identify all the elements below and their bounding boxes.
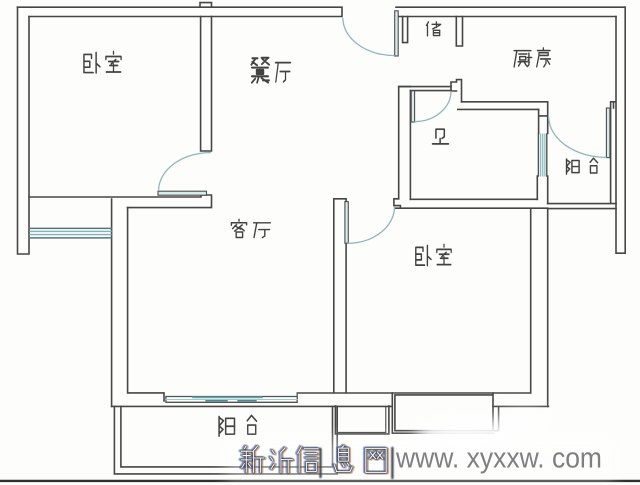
svg-text:www. xyxxw. com: www. xyxxw. com <box>395 443 602 475</box>
